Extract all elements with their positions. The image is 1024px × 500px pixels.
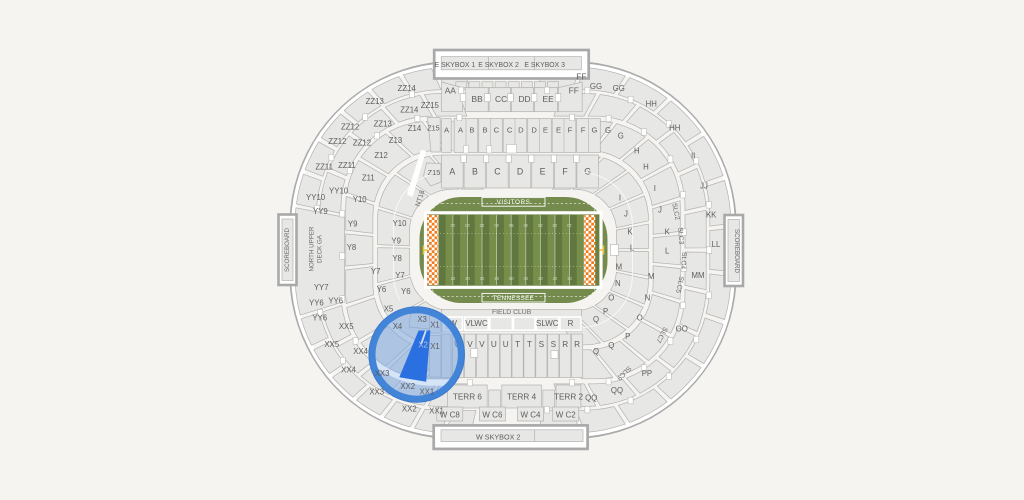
svg-text:FF: FF xyxy=(569,86,579,96)
svg-text:DECK GA: DECK GA xyxy=(317,234,324,263)
svg-text:L: L xyxy=(630,243,635,252)
svg-text:30: 30 xyxy=(480,276,485,281)
svg-text:10: 10 xyxy=(450,223,455,228)
svg-text:J: J xyxy=(624,209,628,218)
svg-text:N: N xyxy=(615,279,621,288)
svg-text:YY6: YY6 xyxy=(309,298,324,307)
svg-text:JJ: JJ xyxy=(700,181,708,190)
svg-text:OO: OO xyxy=(676,324,688,333)
svg-text:10: 10 xyxy=(567,276,572,281)
svg-text:F: F xyxy=(581,126,586,135)
svg-text:NORTH UPPER: NORTH UPPER xyxy=(309,226,316,271)
svg-text:ZZ11: ZZ11 xyxy=(315,163,333,172)
svg-text:HH: HH xyxy=(646,99,657,108)
svg-text:I: I xyxy=(619,193,621,202)
svg-text:C: C xyxy=(507,126,513,135)
svg-text:Y6: Y6 xyxy=(401,287,411,296)
svg-text:TERR 4: TERR 4 xyxy=(507,392,537,401)
svg-text:U: U xyxy=(503,340,509,349)
svg-text:G: G xyxy=(591,126,597,135)
svg-text:X4: X4 xyxy=(393,322,403,331)
svg-text:ZZ13: ZZ13 xyxy=(374,120,392,129)
svg-text:V: V xyxy=(479,340,485,349)
svg-text:EE: EE xyxy=(543,94,555,104)
svg-text:P: P xyxy=(625,332,630,341)
svg-text:Y9: Y9 xyxy=(391,236,401,245)
svg-text:LL: LL xyxy=(712,240,721,249)
svg-text:YY6: YY6 xyxy=(328,297,343,306)
svg-text:SLWC: SLWC xyxy=(536,319,559,328)
svg-text:T: T xyxy=(527,340,532,349)
svg-text:AA: AA xyxy=(445,86,457,96)
svg-text:ZZ14: ZZ14 xyxy=(398,84,417,93)
svg-text:10: 10 xyxy=(451,276,456,281)
svg-text:B: B xyxy=(483,126,488,135)
svg-text:D: D xyxy=(518,126,524,135)
svg-text:VLWC: VLWC xyxy=(465,319,488,328)
svg-text:YY10: YY10 xyxy=(329,186,349,195)
svg-text:BB: BB xyxy=(472,94,484,104)
svg-text:E SKYBOX 3: E SKYBOX 3 xyxy=(524,62,565,69)
svg-text:G: G xyxy=(605,126,611,135)
svg-text:FIELD CLUB: FIELD CLUB xyxy=(492,309,532,316)
svg-text:S: S xyxy=(551,340,557,349)
svg-text:SCOREBOARD: SCOREBOARD xyxy=(284,227,291,272)
svg-text:C: C xyxy=(494,126,500,135)
svg-text:VISITORS: VISITORS xyxy=(497,199,531,206)
svg-text:V: V xyxy=(467,340,473,349)
svg-text:R: R xyxy=(568,319,574,328)
svg-text:50: 50 xyxy=(509,276,514,281)
svg-text:DD: DD xyxy=(518,94,530,104)
svg-text:A: A xyxy=(449,167,455,177)
svg-text:40: 40 xyxy=(494,223,499,228)
svg-text:10: 10 xyxy=(567,223,572,228)
svg-text:30: 30 xyxy=(479,223,484,228)
svg-text:W C2: W C2 xyxy=(556,411,577,420)
svg-text:J: J xyxy=(658,205,662,214)
svg-text:D: D xyxy=(531,126,537,135)
svg-text:40: 40 xyxy=(523,223,528,228)
svg-text:XX3: XX3 xyxy=(369,388,384,397)
svg-text:C: C xyxy=(494,167,501,177)
svg-text:M: M xyxy=(648,272,655,281)
svg-text:ZZ14: ZZ14 xyxy=(400,106,419,115)
svg-text:L: L xyxy=(665,247,670,256)
svg-text:E: E xyxy=(543,126,548,135)
svg-text:K: K xyxy=(665,227,671,236)
svg-text:30: 30 xyxy=(537,223,542,228)
svg-text:E SKYBOX 1: E SKYBOX 1 xyxy=(435,62,476,69)
svg-text:X2: X2 xyxy=(418,341,428,350)
svg-text:Y7: Y7 xyxy=(395,271,405,280)
svg-text:SLC3: SLC3 xyxy=(676,227,684,245)
svg-text:I: I xyxy=(654,184,656,193)
svg-text:XX5: XX5 xyxy=(324,340,339,349)
svg-text:KK: KK xyxy=(706,211,717,220)
svg-text:20: 20 xyxy=(552,223,557,228)
svg-text:ZZ12: ZZ12 xyxy=(328,137,346,146)
svg-text:Y10: Y10 xyxy=(393,219,408,228)
svg-text:R: R xyxy=(574,340,580,349)
svg-text:X5: X5 xyxy=(384,304,394,313)
svg-text:T: T xyxy=(515,340,520,349)
svg-text:P: P xyxy=(603,307,608,316)
svg-text:II: II xyxy=(691,151,695,160)
svg-text:XX3: XX3 xyxy=(375,369,390,378)
svg-text:Y9: Y9 xyxy=(348,220,358,229)
svg-text:XX4: XX4 xyxy=(353,347,368,356)
svg-text:GG: GG xyxy=(590,82,602,91)
svg-text:ZZ13: ZZ13 xyxy=(366,97,384,106)
svg-text:QQ: QQ xyxy=(585,394,597,403)
svg-text:PP: PP xyxy=(642,369,652,378)
svg-text:20: 20 xyxy=(465,276,470,281)
svg-text:20: 20 xyxy=(553,276,558,281)
svg-text:40: 40 xyxy=(494,276,499,281)
svg-text:Y6: Y6 xyxy=(377,285,387,294)
svg-text:G: G xyxy=(618,131,624,140)
svg-text:YY10: YY10 xyxy=(306,193,326,202)
svg-text:W C4: W C4 xyxy=(521,411,542,420)
svg-text:H: H xyxy=(643,163,649,172)
svg-text:YY9: YY9 xyxy=(313,207,328,216)
svg-text:Q: Q xyxy=(593,315,599,324)
svg-text:XX2: XX2 xyxy=(400,382,415,391)
svg-text:Z15: Z15 xyxy=(427,124,439,133)
svg-text:X3: X3 xyxy=(417,315,427,324)
svg-text:D: D xyxy=(517,167,523,177)
svg-text:20: 20 xyxy=(465,223,470,228)
svg-text:H: H xyxy=(634,147,640,156)
svg-text:U: U xyxy=(491,340,497,349)
svg-text:YY7: YY7 xyxy=(314,283,329,292)
svg-text:ZZ12: ZZ12 xyxy=(353,139,371,148)
svg-text:YY6: YY6 xyxy=(312,313,327,322)
svg-text:30: 30 xyxy=(538,276,543,281)
svg-text:Y7: Y7 xyxy=(371,267,381,276)
svg-text:QQ: QQ xyxy=(611,386,623,395)
svg-text:Y8: Y8 xyxy=(392,254,402,263)
svg-text:Q: Q xyxy=(608,341,614,350)
svg-text:W SKYBOX 2: W SKYBOX 2 xyxy=(476,432,520,441)
svg-text:ZZ15: ZZ15 xyxy=(421,101,440,110)
svg-text:XX1: XX1 xyxy=(420,388,435,397)
svg-text:ZZ12: ZZ12 xyxy=(341,123,359,132)
svg-text:Z14: Z14 xyxy=(408,124,422,133)
svg-text:MM: MM xyxy=(692,271,705,280)
svg-text:Y8: Y8 xyxy=(347,243,357,252)
svg-text:SLC4: SLC4 xyxy=(679,252,687,270)
svg-text:G: G xyxy=(584,167,591,177)
svg-text:50: 50 xyxy=(508,223,513,228)
svg-text:N: N xyxy=(645,294,651,303)
svg-text:FF: FF xyxy=(576,71,586,81)
svg-text:XX5: XX5 xyxy=(339,322,354,331)
svg-text:XX4: XX4 xyxy=(341,366,356,375)
svg-text:XX2: XX2 xyxy=(402,405,417,414)
svg-text:B: B xyxy=(469,126,474,135)
svg-text:O: O xyxy=(608,294,614,303)
svg-text:Q: Q xyxy=(593,347,599,356)
svg-text:B: B xyxy=(472,167,478,177)
svg-text:E: E xyxy=(540,167,546,177)
svg-text:F: F xyxy=(562,167,568,177)
svg-text:Z11: Z11 xyxy=(362,174,375,183)
svg-text:SCOREBOARD: SCOREBOARD xyxy=(733,229,740,274)
svg-text:CC: CC xyxy=(495,94,507,104)
svg-text:GG: GG xyxy=(613,84,625,93)
svg-text:E: E xyxy=(556,126,561,135)
svg-text:X1: X1 xyxy=(430,342,440,351)
svg-text:Y10: Y10 xyxy=(353,195,368,204)
svg-text:TERR 2: TERR 2 xyxy=(554,392,584,401)
svg-text:K: K xyxy=(627,227,633,236)
svg-text:Z13: Z13 xyxy=(389,136,402,145)
svg-text:40: 40 xyxy=(523,276,528,281)
svg-text:TENNESSEE: TENNESSEE xyxy=(493,295,534,302)
svg-text:HH: HH xyxy=(669,123,680,132)
svg-text:R: R xyxy=(562,340,568,349)
svg-text:XX1: XX1 xyxy=(429,406,444,415)
svg-text:E SKYBOX 2: E SKYBOX 2 xyxy=(478,62,519,69)
svg-text:TERR 6: TERR 6 xyxy=(453,392,483,401)
svg-text:Z12: Z12 xyxy=(374,151,387,160)
svg-text:M: M xyxy=(616,262,623,271)
svg-text:F: F xyxy=(568,126,573,135)
svg-text:X1: X1 xyxy=(430,320,440,329)
svg-text:O: O xyxy=(637,314,643,323)
svg-text:S: S xyxy=(539,340,545,349)
svg-text:W C6: W C6 xyxy=(482,411,503,420)
svg-text:ZZ11: ZZ11 xyxy=(338,161,356,170)
